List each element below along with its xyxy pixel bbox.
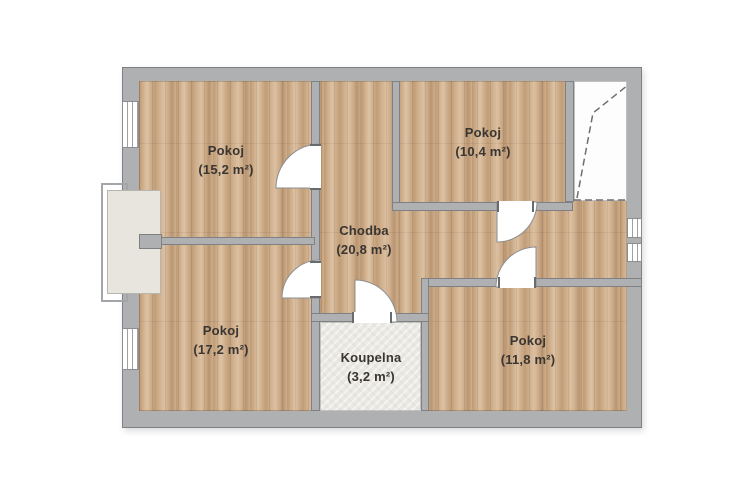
floor-plan: Pokoj (15,2 m²) Pokoj (10,4 m²) Chodba (… [0, 0, 749, 500]
window [627, 243, 642, 262]
staircase-area [574, 81, 627, 201]
door-opening [497, 201, 534, 212]
wall-topright-room-bottom [392, 202, 573, 211]
room-area: (17,2 m²) [193, 341, 248, 360]
door-opening [310, 144, 321, 190]
room-name: Pokoj [455, 124, 510, 143]
door-opening [352, 312, 392, 323]
room-label-bottom-left: Pokoj (17,2 m²) [193, 322, 248, 360]
door-opening [310, 261, 321, 298]
door-opening [498, 277, 536, 288]
room-name: Pokoj [193, 322, 248, 341]
room-area: (20,8 m²) [336, 241, 391, 260]
wall-spine-vertical [311, 81, 320, 411]
room-area: (10,4 m²) [455, 143, 510, 162]
room-name: Koupelna [341, 349, 402, 368]
room-label-hallway: Chodba (20,8 m²) [336, 222, 391, 260]
window [122, 328, 139, 370]
room-label-top-left: Pokoj (15,2 m²) [198, 142, 253, 180]
wall-between-left-rooms [139, 237, 315, 245]
wall-topright-room-right [565, 81, 574, 202]
room-label-top-right: Pokoj (10,4 m²) [455, 124, 510, 162]
room-name: Pokoj [198, 142, 253, 161]
room-label-bottom-right: Pokoj (11,8 m²) [501, 332, 556, 370]
wall-bathroom-right [421, 278, 429, 411]
balcony-wall-stub [139, 234, 162, 249]
room-label-bathroom: Koupelna (3,2 m²) [341, 349, 402, 387]
window [627, 218, 642, 238]
room-name: Chodba [336, 222, 391, 241]
window [122, 101, 139, 148]
room-name: Pokoj [501, 332, 556, 351]
room-area: (3,2 m²) [341, 368, 402, 387]
wall-topright-room-left [392, 81, 400, 211]
room-area: (15,2 m²) [198, 161, 253, 180]
room-area: (11,8 m²) [501, 351, 556, 370]
